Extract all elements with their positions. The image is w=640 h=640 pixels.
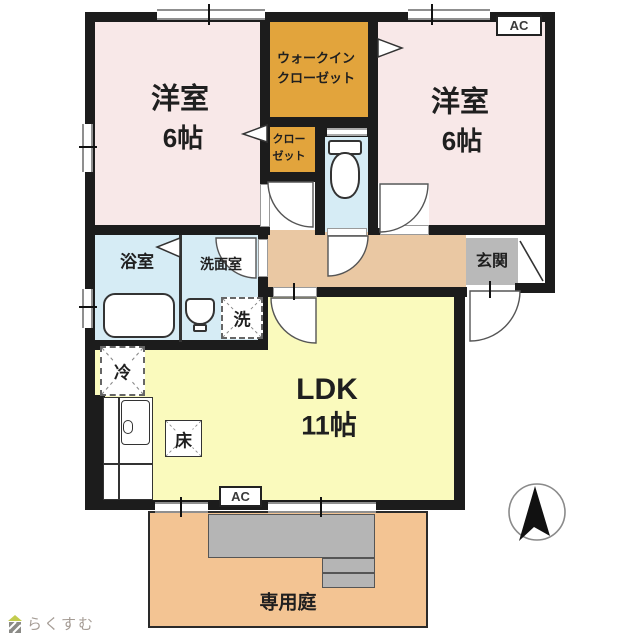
window bbox=[82, 289, 93, 328]
bathtub-icon bbox=[103, 293, 175, 338]
refrigerator-box: 冷 bbox=[100, 346, 145, 396]
ac-badge: AC bbox=[496, 15, 542, 36]
kitchen-counter-divider bbox=[118, 397, 120, 500]
wall-segment bbox=[85, 225, 270, 235]
north-arrow-icon bbox=[509, 484, 565, 541]
ac-label: AC bbox=[231, 489, 250, 504]
closet-label-line2: ゼット bbox=[273, 152, 306, 163]
window bbox=[268, 502, 376, 513]
door-threshold bbox=[380, 225, 429, 235]
terrace-step bbox=[322, 573, 375, 588]
window bbox=[327, 128, 367, 136]
wall-segment bbox=[368, 12, 378, 235]
floor-storage-label: 床 bbox=[175, 426, 192, 451]
wall-segment bbox=[515, 283, 555, 293]
door-threshold bbox=[260, 184, 270, 227]
terrace-step bbox=[322, 558, 375, 573]
window bbox=[82, 124, 93, 172]
room-hallway bbox=[265, 230, 466, 287]
bathroom-label: 浴室 bbox=[120, 254, 154, 271]
door-threshold bbox=[273, 287, 317, 297]
walk-in-closet-label-line2: クローゼット bbox=[277, 72, 355, 85]
washing-machine-box: 洗 bbox=[221, 297, 263, 339]
floor-storage-box: 床 bbox=[165, 420, 202, 457]
wall-segment bbox=[260, 12, 270, 184]
door-nook bbox=[270, 182, 315, 230]
walk-in-closet-label-line1: ウォークイン bbox=[277, 52, 355, 65]
wall-segment bbox=[315, 127, 325, 235]
kitchen-faucet-icon bbox=[123, 420, 133, 434]
logo-house-icon bbox=[7, 612, 23, 634]
bedroom2-size: 6帖 bbox=[442, 128, 482, 154]
window bbox=[408, 9, 490, 20]
entrance-porch bbox=[518, 235, 545, 283]
entrance-label: 玄関 bbox=[476, 254, 508, 270]
wall-segment bbox=[179, 235, 182, 342]
wall-segment bbox=[429, 225, 555, 235]
terrace bbox=[208, 514, 375, 558]
door-swing bbox=[470, 291, 520, 341]
site-logo: らくすむ bbox=[7, 612, 95, 634]
ldk-size: 11帖 bbox=[301, 413, 357, 440]
door-threshold bbox=[327, 228, 367, 236]
wall-segment bbox=[454, 287, 465, 510]
wall-segment bbox=[545, 12, 555, 293]
bedroom1-name: 洋室 bbox=[151, 86, 209, 115]
wall-segment bbox=[317, 287, 467, 297]
washroom-label: 洗面室 bbox=[200, 257, 242, 271]
ldk-name: LDK bbox=[296, 375, 358, 405]
logo-text: らくすむ bbox=[27, 613, 95, 634]
floor-plan: 洗 冷 床 AC AC 洋室 6帖 洋室 6帖 ウォークイン クローゼット クロ… bbox=[0, 0, 640, 640]
toilet-bowl-icon bbox=[330, 152, 360, 199]
kitchen-counter-divider bbox=[103, 463, 153, 465]
window bbox=[157, 9, 265, 20]
bedroom1-size: 6帖 bbox=[163, 125, 203, 151]
door-nook bbox=[378, 183, 429, 228]
room-walk-in-closet bbox=[265, 22, 368, 117]
washing-machine-label: 洗 bbox=[234, 306, 251, 331]
wall-segment bbox=[85, 395, 105, 510]
closet-label-line1: クロー bbox=[273, 135, 306, 146]
ac-label: AC bbox=[510, 18, 529, 33]
window bbox=[155, 502, 208, 513]
bedroom2-name: 洋室 bbox=[431, 89, 489, 118]
ac-badge: AC bbox=[219, 486, 262, 507]
door-threshold bbox=[258, 239, 268, 277]
refrigerator-label: 冷 bbox=[114, 359, 131, 384]
sink-pedestal bbox=[193, 324, 207, 332]
garden-label: 専用庭 bbox=[259, 594, 316, 613]
